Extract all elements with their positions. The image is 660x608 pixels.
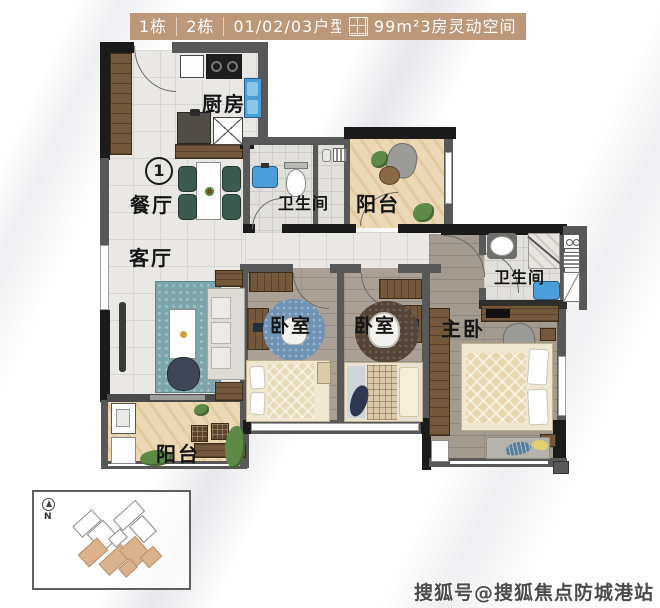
prep-basin-icon: [213, 117, 243, 145]
wall-segment: [246, 137, 350, 145]
master-bedroom-label: 主卧: [441, 313, 485, 342]
toilet-tank: [284, 162, 308, 169]
dining-chair: [222, 194, 241, 220]
tab-building-2[interactable]: 2栋: [177, 13, 223, 40]
tab-unit-type[interactable]: 01/02/03户型: [224, 13, 356, 40]
entry-cabinet: [110, 53, 132, 155]
sink-basin: [247, 82, 258, 96]
floorplan-page: { "header": { "tabs": ["1栋", "2栋", "01/0…: [0, 0, 660, 608]
leaf-motif-icon: [531, 438, 549, 452]
ac-ledge: [553, 461, 569, 474]
wall-segment: [337, 264, 344, 424]
pillow: [399, 367, 419, 417]
bathroom1-label: 卫生间: [278, 190, 329, 214]
wall-segment: [243, 420, 251, 434]
bedroom-windows: [251, 423, 419, 431]
fridge-icon: [180, 55, 204, 78]
laundry-sink-icon: [111, 403, 136, 434]
sofa-cushion: [211, 347, 231, 369]
ensuite-label: 卫生间: [494, 264, 545, 288]
north-label: N: [44, 512, 52, 522]
wall-segment: [479, 235, 486, 255]
nightstand: [317, 362, 331, 384]
wall-segment: [313, 144, 318, 228]
sink-basin: [247, 100, 258, 114]
wall-segment: [243, 137, 250, 232]
dining-chair: [222, 166, 241, 192]
sofa-cushion: [211, 322, 231, 344]
rack-icon: [333, 148, 347, 162]
dining-chair: [178, 166, 197, 192]
master-side-window: [558, 356, 566, 416]
shelf-icon: [563, 252, 580, 268]
corner-window-box: [431, 440, 449, 462]
unit-number-marker: 1: [145, 157, 173, 185]
toiletry-bottles-icon: [322, 149, 331, 162]
sofa-cushion: [211, 297, 231, 319]
kitchen-sink-icon: [244, 78, 262, 118]
living-label: 客厅: [129, 242, 173, 271]
master-bed: [461, 343, 553, 431]
wall-segment: [172, 42, 268, 53]
bedroom1-label: 卧室: [270, 311, 312, 338]
site-key-plan: N: [32, 490, 191, 590]
pillow: [249, 392, 265, 416]
end-table: [215, 270, 243, 287]
kitchen-label: 厨房: [202, 88, 246, 117]
wall-segment: [398, 264, 441, 273]
stove-icon: [206, 54, 242, 79]
sofa: [207, 288, 245, 380]
area-banner: 99m²3房灵动空间: [341, 13, 526, 40]
burner-icon: [211, 61, 222, 72]
dining-chair: [178, 194, 197, 220]
wall-segment: [100, 42, 134, 53]
area-seal-icon: [349, 17, 368, 36]
balcony-top-label: 阳台: [356, 188, 400, 217]
toilet-bowl: [490, 236, 514, 256]
wall-segment: [579, 226, 587, 310]
watermark: 搜狐号@搜狐焦点防城港站: [414, 578, 654, 605]
faucet-icon: [261, 163, 269, 168]
nightstand: [540, 328, 556, 341]
wall-segment: [100, 310, 110, 402]
north-arrow-icon: [46, 500, 52, 507]
niche-door: [563, 272, 580, 302]
blanket: [268, 363, 314, 418]
wardrobe: [249, 272, 293, 292]
side-table: [379, 166, 400, 185]
area-text: 99m²3房灵动空间: [372, 13, 526, 40]
wardrobe: [379, 279, 422, 299]
kettle-icon: [190, 109, 200, 116]
bed: [344, 362, 423, 422]
bathroom1-sink-icon: [252, 166, 278, 188]
shower-glass: [527, 236, 560, 265]
table-plant-icon: [205, 187, 214, 196]
blanket: [466, 353, 526, 423]
north-compass-icon: [42, 498, 55, 511]
pillow: [527, 389, 549, 426]
wall-segment: [100, 42, 110, 160]
dining-label: 餐厅: [130, 189, 174, 218]
wall-segment: [398, 224, 446, 233]
washer-dial: [573, 239, 580, 246]
wall-segment: [344, 127, 456, 139]
checkered-blanket: [367, 365, 397, 420]
basin: [116, 409, 130, 427]
master-bottom-window: [450, 461, 548, 464]
coffee-table: [169, 309, 196, 359]
end-table: [215, 382, 243, 401]
washer-icon: [563, 234, 580, 249]
balcony-bottom-label: 阳台: [156, 438, 200, 467]
wall-segment: [330, 264, 361, 273]
decor-icon: [180, 331, 187, 338]
kitchen-bar-cabinet: [175, 144, 243, 159]
dining-table: [196, 162, 221, 220]
armchair: [167, 357, 200, 391]
tv-icon: [486, 309, 510, 318]
accent-rug: [486, 437, 550, 459]
tv-icon: [119, 302, 126, 372]
wall-segment: [282, 224, 356, 233]
balcony-top-window: [445, 152, 452, 204]
sliding-door: [150, 395, 205, 400]
living-window: [100, 245, 109, 310]
cabinet: [111, 437, 136, 464]
dresser: [481, 305, 559, 322]
washer-dial: [566, 239, 573, 246]
bedroom2-label: 卧室: [354, 311, 396, 338]
toilet-icon: [487, 233, 517, 259]
pillow: [249, 366, 266, 390]
hallway-floor: [245, 232, 439, 268]
pillow: [527, 348, 549, 385]
wall-segment: [101, 400, 108, 468]
wall-segment: [421, 420, 429, 434]
fish-motif-icon: [504, 439, 532, 457]
tab-building-1[interactable]: 1栋: [130, 13, 176, 40]
unit-tabs: 1栋 2栋 01/02/03户型: [130, 13, 356, 40]
burner-icon: [227, 61, 238, 72]
wall-segment: [100, 158, 109, 245]
